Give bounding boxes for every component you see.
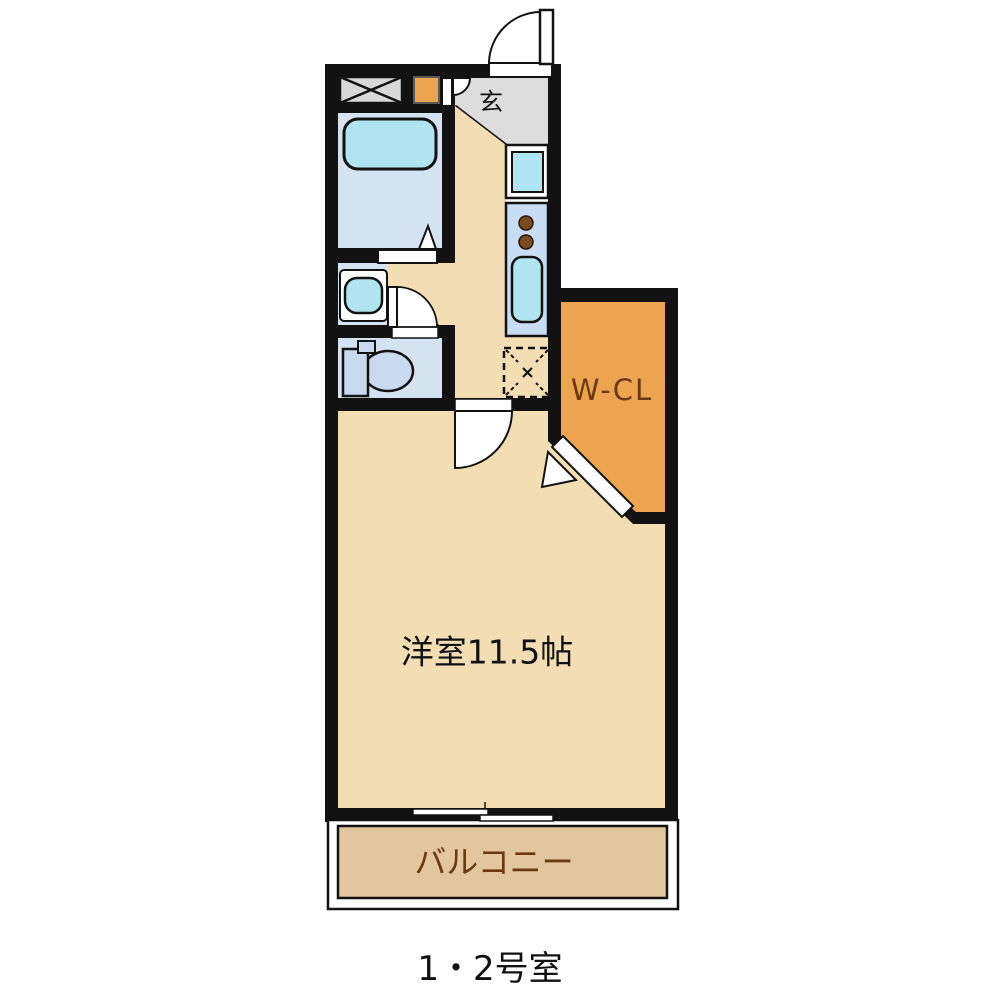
toilet-cistern xyxy=(343,349,368,396)
stove-burner-2 xyxy=(519,235,533,249)
unit-caption: 1・2号室 xyxy=(417,949,562,989)
toilet-tank-lid xyxy=(358,341,375,353)
utility-door-leaf xyxy=(442,78,452,106)
entrance-door-swing-arc xyxy=(489,12,540,62)
balcony-label: バルコニー xyxy=(414,843,573,881)
window-pane-right xyxy=(480,815,553,821)
kitchen xyxy=(506,145,548,336)
bathtub xyxy=(344,119,436,169)
bath-sliding-door xyxy=(378,250,437,263)
kitchen-sink xyxy=(512,257,542,322)
toilet-bowl xyxy=(363,351,413,391)
entrance-door-leaf xyxy=(540,10,553,64)
washbasin xyxy=(340,270,387,321)
wall-mainroom-top xyxy=(325,398,561,411)
entrance-label: 玄 xyxy=(479,88,503,116)
toilet-door-leaf xyxy=(388,287,397,327)
main-room-label: 洋室11.5帖 xyxy=(401,633,573,672)
washbasin-bowl xyxy=(345,278,382,313)
wall-left xyxy=(325,64,338,822)
washer-space xyxy=(340,77,402,103)
floorplan-page: 玄 W-CL 洋室11.5帖 バルコニー 1・2号室 xyxy=(0,0,1000,1000)
closet-label: W-CL xyxy=(571,373,653,407)
wall-right-lower xyxy=(665,512,678,822)
kitchen-cabinet-inner xyxy=(512,152,543,192)
stove-burner-1 xyxy=(519,216,533,230)
main-room-door-opening xyxy=(455,399,512,411)
shoe-cabinet xyxy=(414,77,439,103)
entrance-door xyxy=(489,10,553,77)
window-pane-left xyxy=(413,809,488,815)
floorplan-drawing: 玄 W-CL 洋室11.5帖 バルコニー 1・2号室 xyxy=(0,0,1000,1000)
